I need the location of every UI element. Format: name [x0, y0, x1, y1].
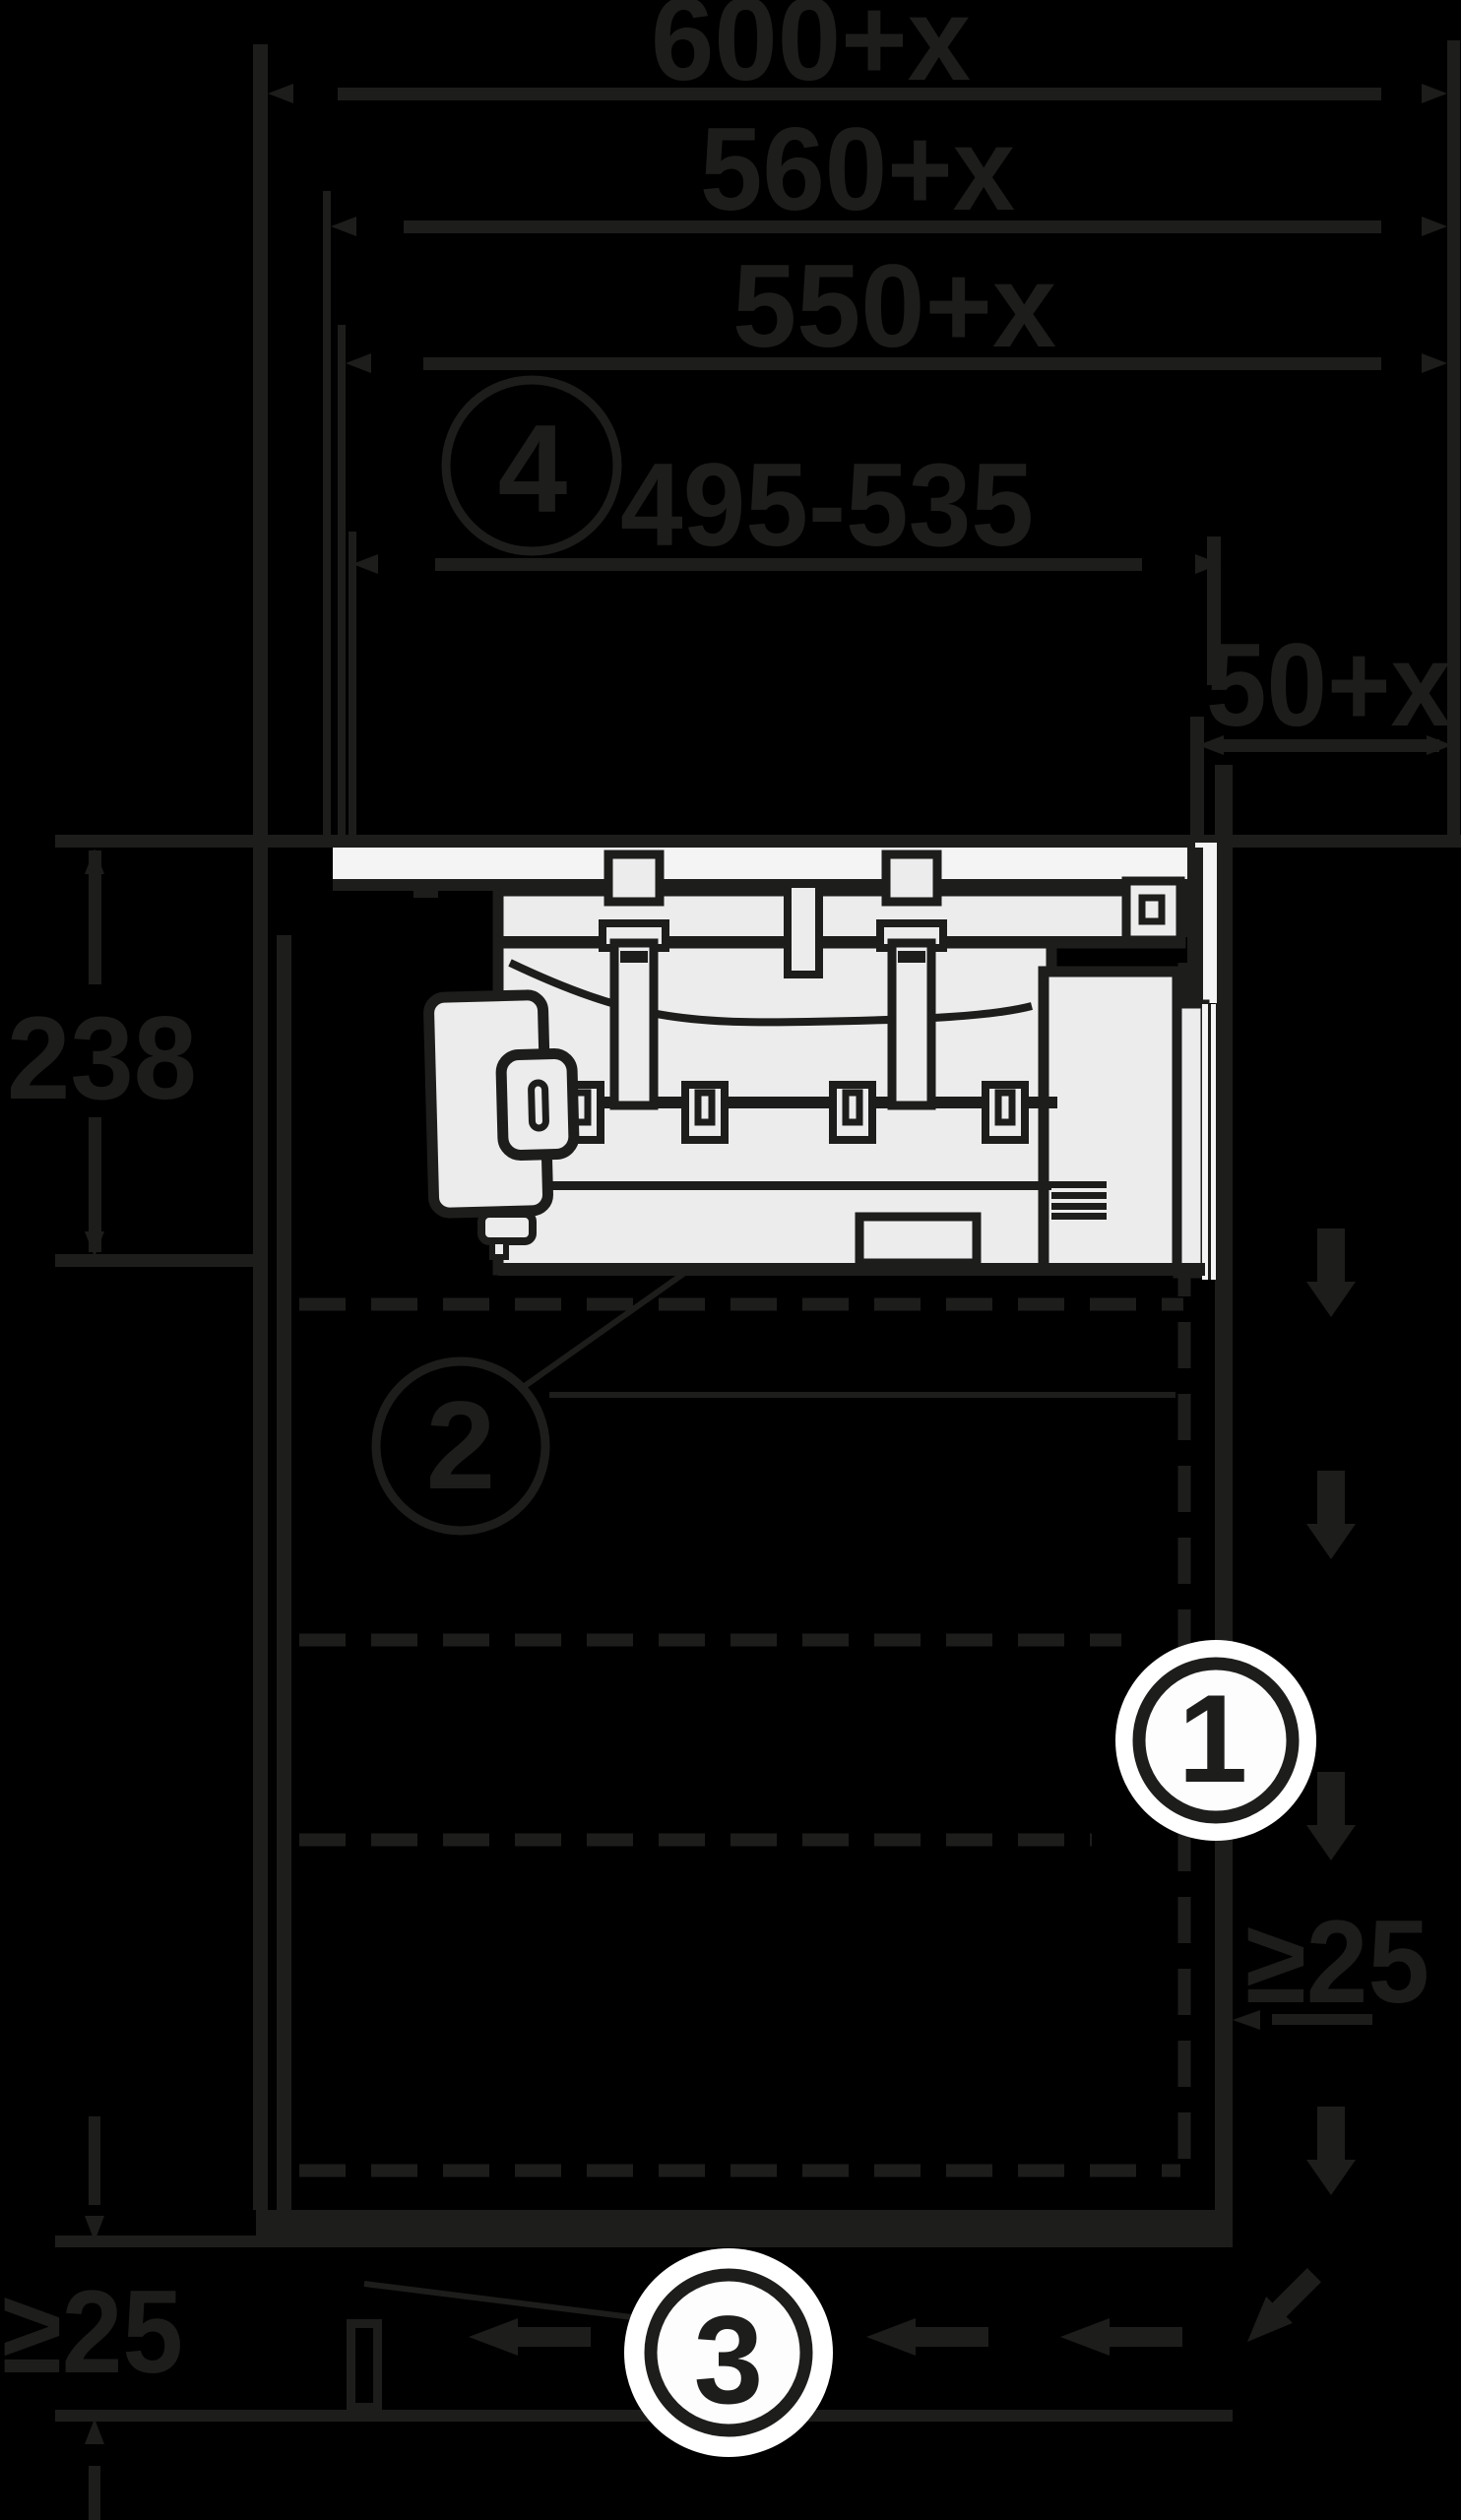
svg-text:1: 1 — [1178, 1669, 1248, 1808]
svg-text:≥25: ≥25 — [1245, 1896, 1429, 2028]
svg-text:560+x: 560+x — [700, 103, 1015, 235]
svg-text:495-535: 495-535 — [620, 439, 1034, 571]
svg-text:4: 4 — [498, 399, 568, 538]
svg-text:2: 2 — [426, 1375, 496, 1515]
svg-text:50+x: 50+x — [1206, 619, 1451, 751]
svg-text:600+x: 600+x — [651, 0, 971, 105]
svg-text:≥25: ≥25 — [2, 2266, 183, 2398]
svg-text:238: 238 — [7, 992, 197, 1124]
svg-text:3: 3 — [694, 2290, 764, 2429]
svg-text:550+x: 550+x — [732, 240, 1056, 372]
